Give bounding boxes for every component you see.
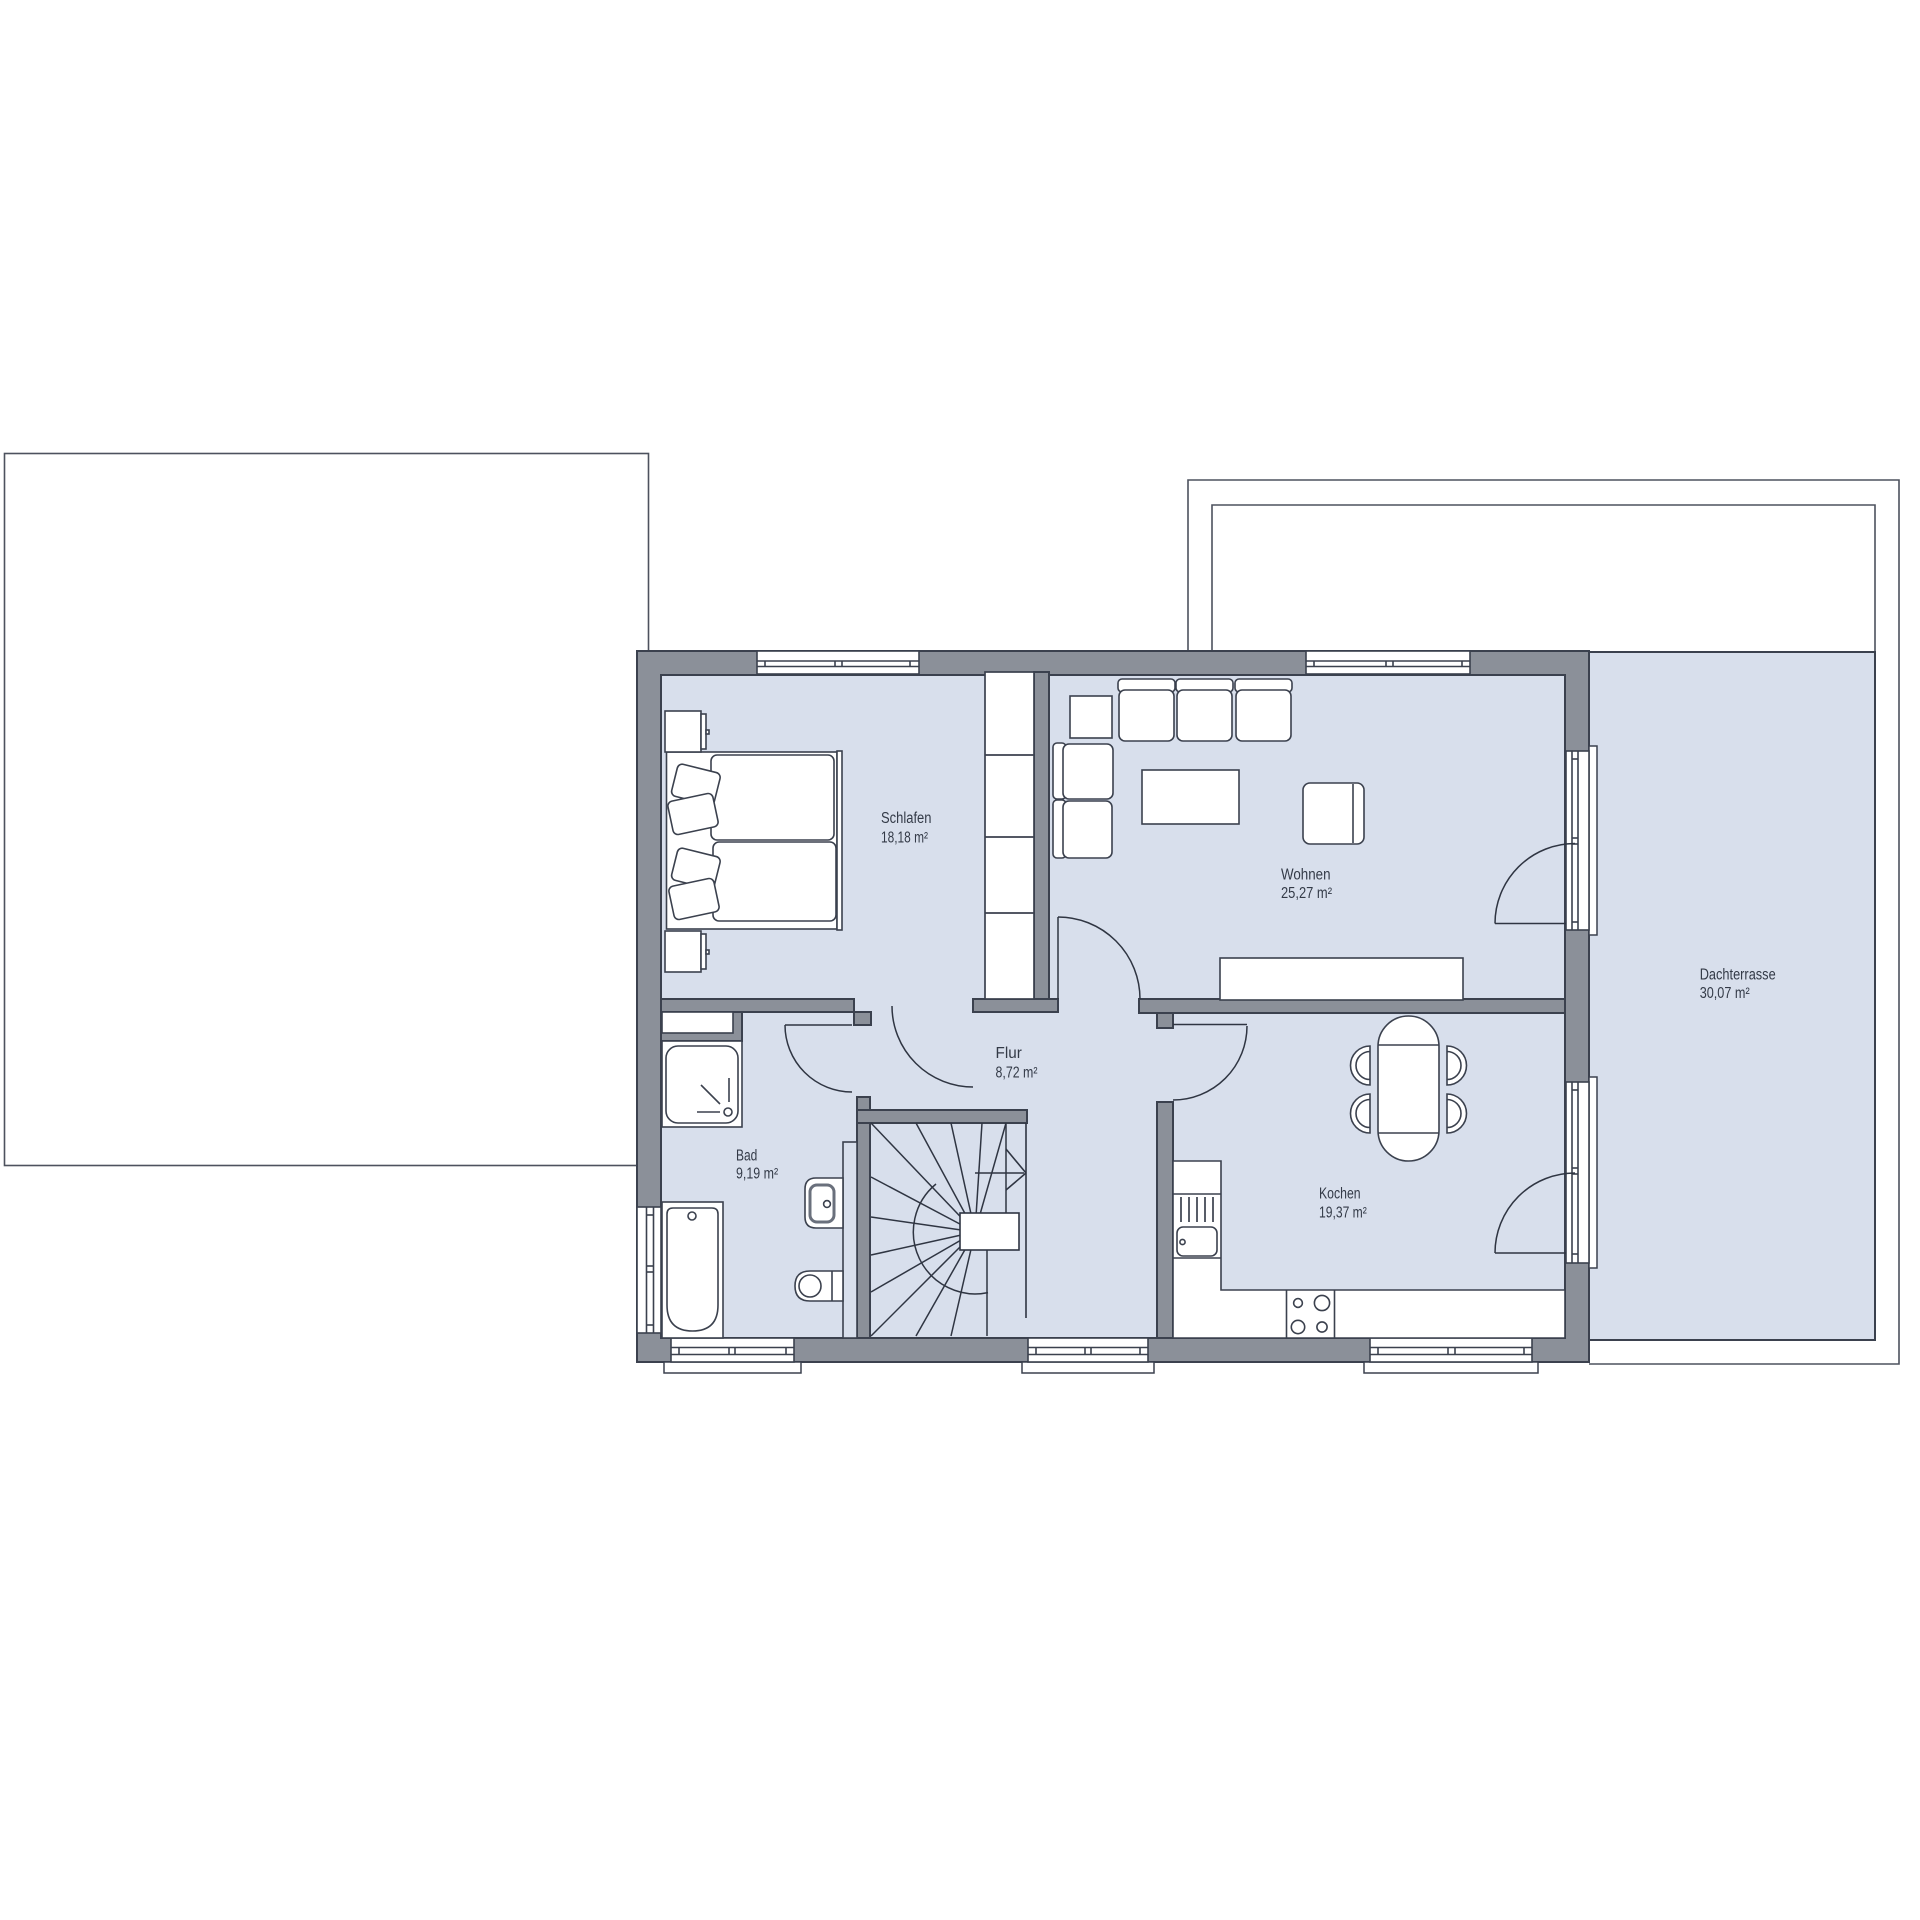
svg-text:Schlafen: Schlafen [881,810,932,827]
svg-text:18,18 m²: 18,18 m² [881,830,928,847]
svg-text:19,37 m²: 19,37 m² [1319,1204,1367,1221]
svg-text:8,72 m²: 8,72 m² [996,1064,1038,1081]
svg-text:9,19 m²: 9,19 m² [736,1166,778,1183]
svg-text:Wohnen: Wohnen [1281,867,1331,884]
svg-text:25,27 m²: 25,27 m² [1281,885,1332,902]
svg-text:Kochen: Kochen [1319,1185,1361,1202]
svg-text:30,07 m²: 30,07 m² [1700,985,1750,1002]
svg-text:Bad: Bad [736,1148,757,1165]
svg-text:Flur: Flur [996,1045,1022,1062]
svg-text:Dachterrasse: Dachterrasse [1700,966,1776,983]
